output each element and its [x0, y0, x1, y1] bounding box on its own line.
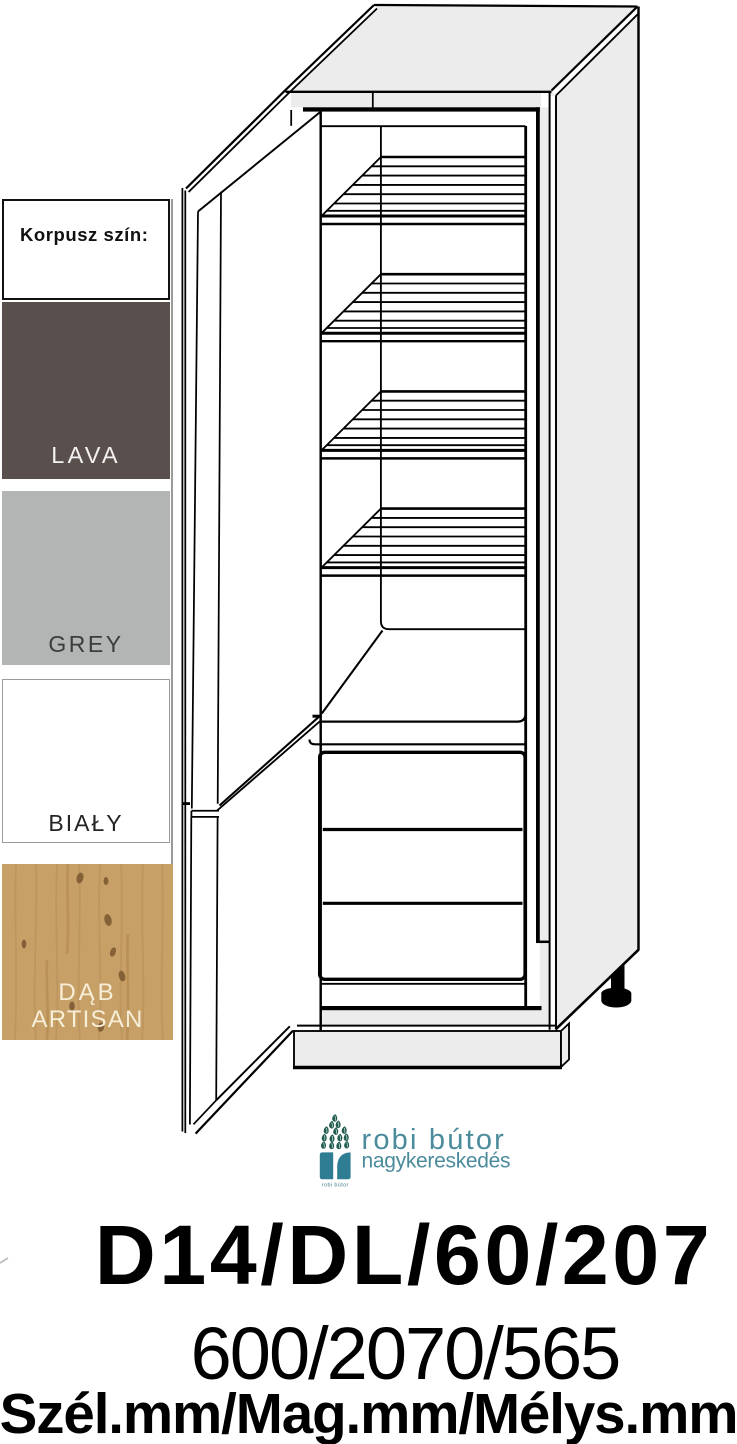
- svg-text:nagykereskedés: nagykereskedés: [362, 1150, 511, 1173]
- svg-text:robi bútor: robi bútor: [322, 1183, 349, 1189]
- svg-text:D14/DL/60/207: D14/DL/60/207: [95, 1208, 714, 1302]
- svg-text:Szél.mm/Mag.mm/Mélys.mm: Szél.mm/Mag.mm/Mélys.mm: [0, 1382, 737, 1444]
